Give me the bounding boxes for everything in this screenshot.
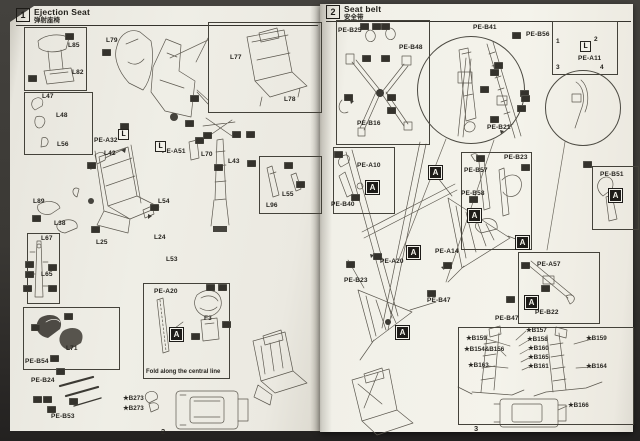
part-label: PE-B41 [473,24,497,31]
part-number-chip [490,116,499,123]
star-part-label: ★B154&B156 [464,346,504,353]
part-number-chip [469,196,478,203]
part-label: PE-B23 [344,277,368,284]
part-number-chip [517,105,526,112]
region-a-badge: A [366,181,379,194]
part-number-chip [334,151,343,158]
part-label: PE-A10 [357,162,381,169]
part-label: PE-A14 [435,248,459,255]
part-label: PE-B23 [504,154,528,161]
part-number-chip [490,69,499,76]
part-number-chip [583,161,592,168]
part-label: PE-B47 [495,315,519,322]
page-number-right: 3 [474,424,478,433]
part-label: 4 [600,64,604,71]
part-label: PE-A11 [578,55,601,62]
part-number-chip [351,194,360,201]
part-label: PE-B48 [399,44,423,51]
bend-direction-icon: L [580,41,591,52]
star-part-label: ★B158 [527,336,548,343]
star-part-label: ★B166 [568,402,589,409]
star-part-label: ★B159 [586,335,607,342]
part-number-chip [346,261,355,268]
part-label: PE-B25 [338,27,362,34]
region-a-badge: A [429,166,442,179]
part-number-chip [521,95,530,102]
annotation-layer-right: PE-B25PE-B48PE-B16PE-B41PE-B56PE-A111234… [0,0,640,441]
detail-box [336,20,430,145]
part-number-chip [381,55,390,62]
part-number-chip [387,107,396,114]
part-number-chip [344,94,353,101]
part-number-chip [372,23,381,30]
star-part-label: ★B164 [586,363,607,370]
star-part-label: ★B163 [468,362,489,369]
region-a-badge: A [396,326,409,339]
star-part-label: ★B159 [466,335,487,342]
part-label: PE-B56 [526,31,550,38]
part-label: PE-B40 [331,201,355,208]
part-number-chip [506,296,515,303]
part-number-chip [387,94,396,101]
part-number-chip [476,155,485,162]
part-number-chip [480,86,489,93]
region-a-badge: A [525,296,538,309]
part-label: PE-B51 [600,171,624,178]
instruction-sheet-scan: 1 Ejection Seat 弹射座椅 2 Seat belt 安全带 L85… [0,0,640,441]
part-number-chip [362,55,371,62]
part-number-chip [494,62,503,69]
region-a-badge: A [407,246,420,259]
part-label: 1 [556,38,560,45]
part-label: PE-B57 [464,167,488,174]
star-part-label: ★B157 [526,327,547,334]
part-number-chip [381,23,390,30]
part-label: PE-B58 [461,190,485,197]
part-label: PE-B16 [357,120,381,127]
part-number-chip [521,262,530,269]
star-part-label: ★B160 [528,345,549,352]
part-label: PE-B21 [487,124,511,131]
region-a-badge: A [468,209,481,222]
star-part-label: ★B165 [528,354,549,361]
part-label: PE-B47 [427,297,451,304]
part-number-chip [541,285,550,292]
magnifier-circle [545,70,621,146]
part-label: PE-B22 [535,309,559,316]
part-label: 2 [594,36,598,43]
part-label: PE-A20 [380,258,404,265]
part-label: PE-A57 [537,261,561,268]
part-number-chip [512,32,521,39]
part-number-chip [427,290,436,297]
region-a-badge: A [516,236,529,249]
page-number-left: 2 [161,427,165,436]
region-a-badge: A [609,189,622,202]
star-part-label: ★B161 [528,363,549,370]
part-number-chip [521,164,530,171]
part-number-chip [443,262,452,269]
part-label: 3 [556,64,560,71]
